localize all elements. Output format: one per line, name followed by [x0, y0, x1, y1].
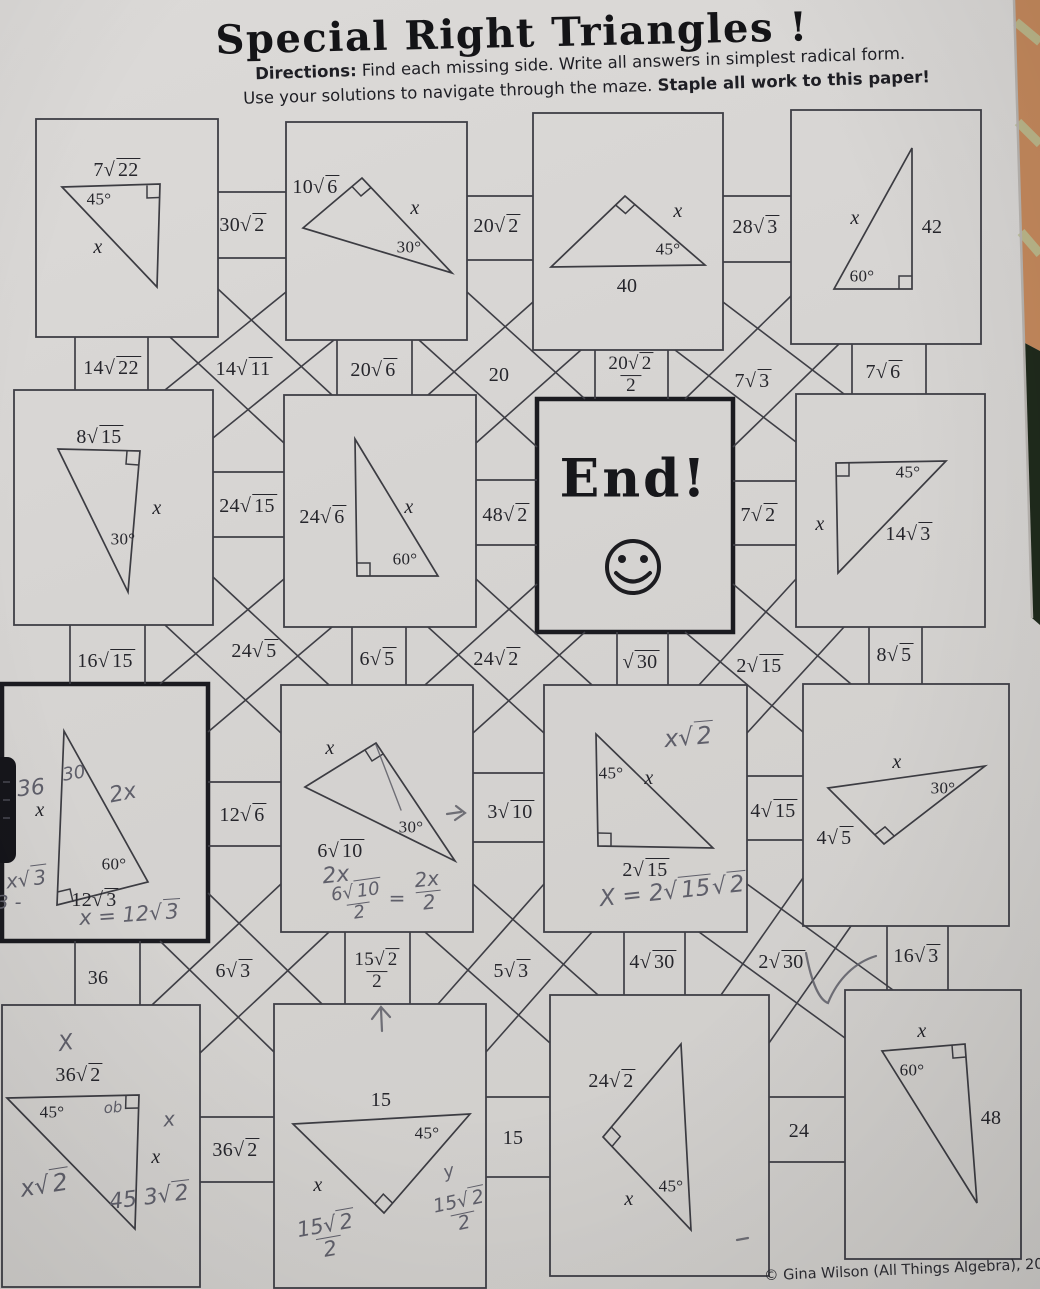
connector-24root2: 24√2: [473, 649, 520, 669]
box10-x-label: x: [325, 738, 334, 758]
connector-16root3: 16√3: [893, 946, 940, 966]
end-box-border: [537, 399, 733, 632]
connector-20: 20: [489, 365, 510, 385]
box1-angle-label: 45°: [87, 191, 112, 208]
box2-side-label: 10√6: [292, 177, 339, 197]
connector-2root15: 2√15: [736, 656, 783, 676]
connector-36: 36: [88, 968, 109, 988]
box13-handwriting-x: x: [162, 1109, 176, 1130]
connector-24root15: 24√15: [219, 496, 277, 516]
connector-20root2-over-2: 20√22: [608, 354, 653, 396]
box9-x-label: x: [35, 800, 44, 820]
connector-12root6: 12√6: [219, 805, 266, 825]
box13-handwriting-X: X: [57, 1032, 75, 1056]
connector-15root2-over-2: 15√22: [354, 950, 399, 992]
box13-handwriting-xroot2: x√2: [19, 1169, 72, 1200]
box15-x-label: x: [624, 1189, 633, 1209]
box3-angle-label: 45°: [656, 241, 681, 258]
box13-top-label: 36√2: [55, 1065, 102, 1085]
box14-angle-label: 45°: [415, 1125, 440, 1142]
box14-top-label: 15: [371, 1090, 392, 1110]
connector-6root3: 6√3: [216, 961, 253, 981]
connector-20root2: 20√2: [473, 216, 520, 236]
box1-hypotenuse-label: 7√22: [93, 160, 140, 180]
object-left-edge: [0, 757, 16, 863]
connector-3root10: 3√10: [487, 802, 534, 822]
box11-handwriting-xroot2: x√2: [663, 723, 715, 751]
pencil-arrow-icon: [447, 812, 461, 814]
box9-handwriting-36: 36: [16, 777, 46, 802]
pencil-up-arrow-icon: [372, 1007, 390, 1031]
connector-2root30: 2√30: [758, 952, 805, 972]
connector-7root3: 7√3: [735, 371, 772, 391]
box8-angle-label: 45°: [896, 464, 921, 481]
box15-angle-label: 45°: [659, 1178, 684, 1195]
triangle-box11: [596, 734, 713, 848]
connector-14root11: 14√11: [216, 359, 273, 379]
box4-angle-label: 60°: [850, 268, 875, 285]
connector-4root30: 4√30: [629, 952, 676, 972]
box15-side-label: 24√2: [588, 1071, 635, 1091]
connector-8root5: 8√5: [877, 645, 914, 665]
box2-x-label: x: [410, 198, 419, 218]
box4-x-label: x: [850, 208, 859, 228]
box14-x-label: x: [313, 1175, 322, 1195]
box5-angle-label: 30°: [111, 531, 136, 548]
connector-30root2: 30√2: [219, 215, 266, 235]
connector-28root3: 28√3: [732, 217, 779, 237]
box5-x-label: x: [152, 498, 161, 518]
box12-angle-label: 30°: [931, 780, 956, 797]
box9-handwriting-2x: 2x: [108, 781, 139, 808]
box4-side-label: 42: [922, 217, 943, 237]
vertical-corridors: [70, 337, 948, 1005]
box9-handwriting-30: 30: [61, 763, 86, 784]
connector-36root2: 36√2: [212, 1140, 259, 1160]
directions-label: Directions:: [255, 61, 357, 83]
connector-4root15: 4√15: [750, 801, 797, 821]
box11-x-label: x: [644, 768, 653, 788]
box6-x-label: x: [404, 497, 413, 517]
connector-root30: √30: [623, 652, 660, 672]
triangle-box16: [882, 1044, 977, 1203]
end-label: End!: [560, 449, 709, 510]
box16-side-label: 48: [981, 1108, 1002, 1128]
box13-x-label: x: [151, 1147, 160, 1167]
connector-16root15: 16√15: [77, 651, 135, 671]
box12-x-label: x: [892, 752, 901, 772]
triangle-box5: [58, 449, 140, 592]
box2-angle-label: 30°: [397, 239, 422, 256]
box10-handwriting-fraction: 6√102: [330, 880, 386, 926]
box11-base-label: 2√15: [622, 860, 669, 880]
box10-handwriting-fraction2: 2x2: [413, 868, 442, 914]
box13-handwriting-ob: ob: [103, 1100, 123, 1117]
box9-handwriting-xroot3: x√3: [5, 866, 49, 891]
box8-x-label: x: [815, 514, 824, 534]
box16-x-label: x: [917, 1021, 926, 1041]
connector-15: 15: [503, 1128, 524, 1148]
pencil-checkmark-icon: [806, 953, 876, 1003]
connector-14root22: 14√22: [83, 358, 141, 378]
box3-x-label: x: [673, 201, 682, 221]
box10-angle-label: 30°: [399, 819, 424, 836]
smiley-icon: [607, 541, 659, 593]
box9-angle-label: 60°: [102, 856, 127, 873]
triangle-box8: [836, 461, 946, 573]
background-carpet: [1014, 0, 1040, 625]
box12-side-label: 4√5: [817, 828, 854, 848]
box10-base-label: 6√10: [317, 841, 364, 861]
box9-handwriting-3: 3 -: [0, 894, 21, 913]
worksheet-photo: Special Right Triangles ! Directions: Fi…: [0, 0, 1040, 1289]
box1-x-label: x: [93, 237, 102, 257]
box11-angle-label: 45°: [599, 765, 624, 782]
right-angle-icons: [58, 186, 967, 1204]
box13-angle-label: 45°: [40, 1104, 65, 1121]
triangle-box9: [57, 731, 148, 905]
connector-7root2: 7√2: [741, 505, 778, 525]
connector-24root5: 24√5: [231, 641, 278, 661]
box8-hypotenuse-label: 14√3: [885, 524, 932, 544]
connector-20root6: 20√6: [350, 360, 397, 380]
box10-handwriting-equals: =: [389, 888, 406, 908]
connector-48root2: 48√2: [482, 505, 529, 525]
connector-7root6: 7√6: [866, 362, 903, 382]
connector-6root5: 6√5: [360, 649, 397, 669]
connector-5root3: 5√3: [494, 961, 531, 981]
connector-24: 24: [789, 1121, 810, 1141]
box5-top-label: 8√15: [76, 427, 123, 447]
box6-side-label: 24√6: [299, 507, 346, 527]
box3-base-label: 40: [617, 276, 638, 296]
box16-angle-label: 60°: [900, 1062, 925, 1079]
box6-angle-label: 60°: [393, 551, 418, 568]
